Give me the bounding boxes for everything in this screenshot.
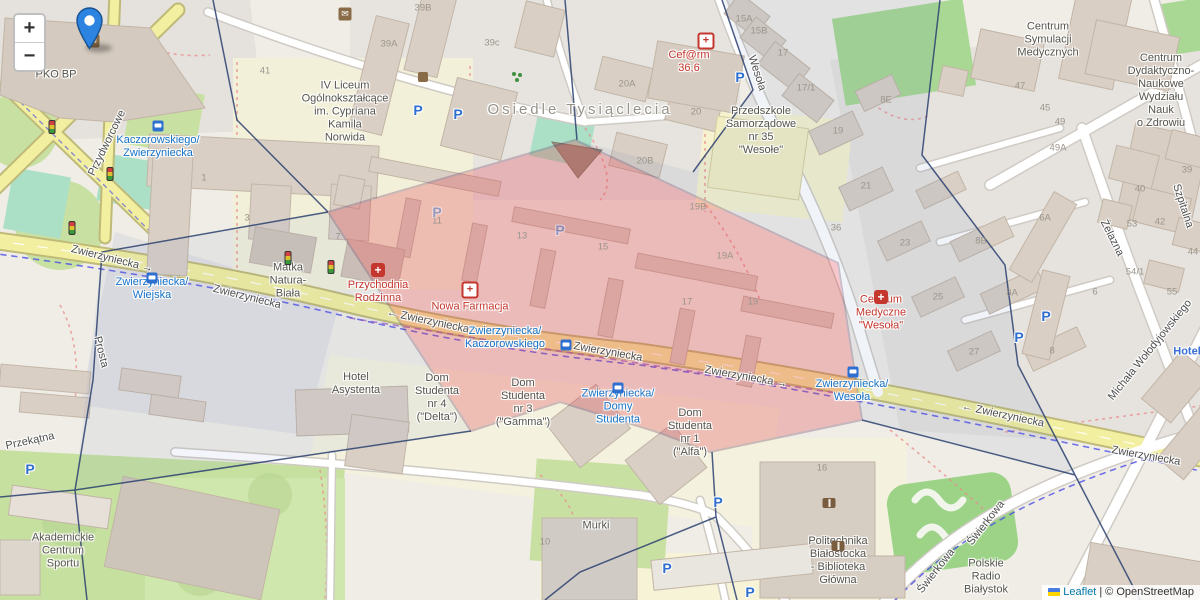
zoom-control: + −	[13, 13, 46, 72]
leaflet-link[interactable]: Leaflet	[1063, 586, 1096, 598]
map-tiles	[0, 0, 1200, 600]
ukraine-flag-icon	[1048, 588, 1060, 596]
zoom-in-button[interactable]: +	[15, 15, 44, 43]
map-marker[interactable]	[76, 7, 103, 50]
marker-pin-icon	[76, 7, 103, 50]
osm-link[interactable]: © OpenStreetMap	[1105, 586, 1194, 598]
map-canvas[interactable]: PrzydworcoweZwierzyniecka →Zwierzyniecka…	[0, 0, 1200, 600]
zoom-out-button[interactable]: −	[15, 43, 44, 70]
attribution-bar: Leaflet | © OpenStreetMap	[1042, 585, 1200, 600]
attribution-separator: |	[1099, 586, 1102, 598]
